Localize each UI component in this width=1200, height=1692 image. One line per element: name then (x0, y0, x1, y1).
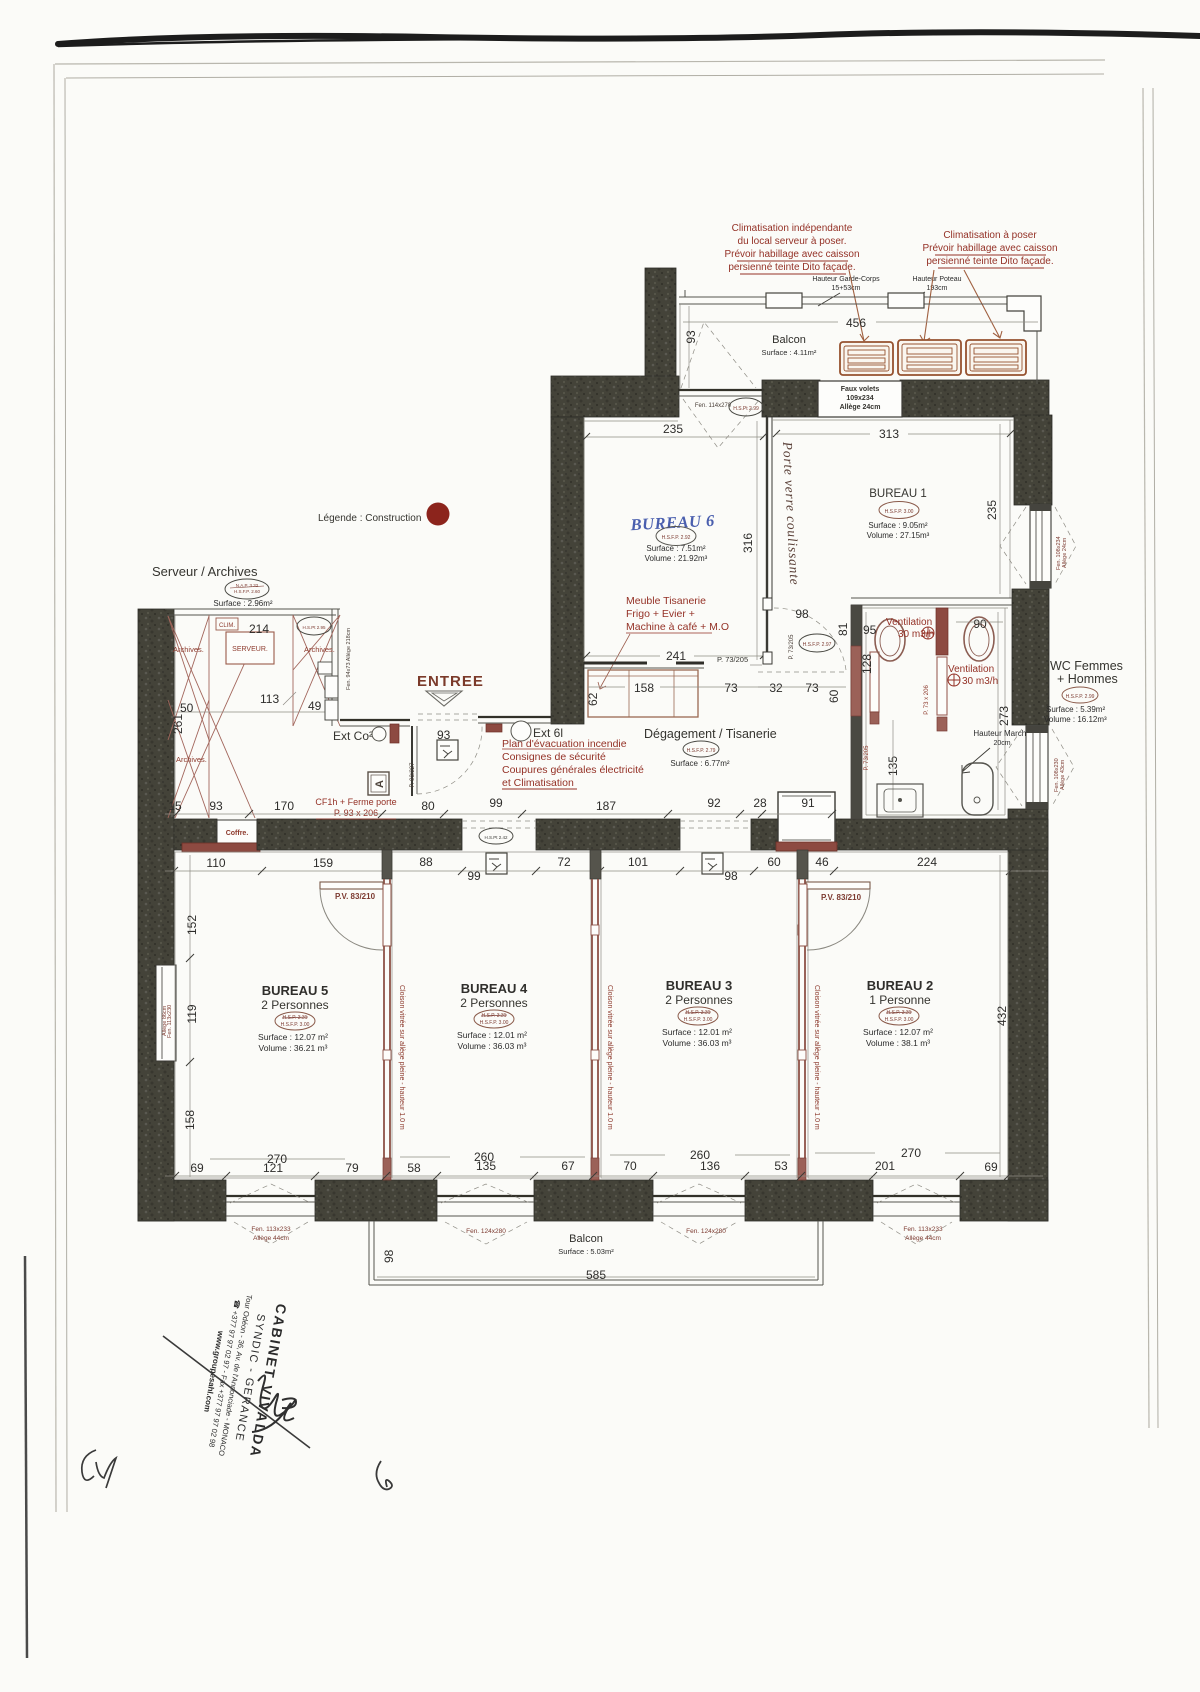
svg-text:H.S.F.P. 3.00: H.S.F.P. 3.00 (281, 1022, 310, 1028)
svg-text:88: 88 (419, 855, 433, 869)
svg-text:136: 136 (700, 1159, 720, 1173)
svg-text:Allège 24cm: Allège 24cm (1062, 537, 1068, 568)
svg-text:P. 93/227: P. 93/227 (410, 762, 416, 788)
svg-text:Volume : 38.1 m³: Volume : 38.1 m³ (866, 1038, 930, 1048)
svg-text:69: 69 (984, 1160, 998, 1174)
svg-text:H.S.F.P. 2.97: H.S.F.P. 2.97 (803, 642, 832, 648)
svg-text:Fen. 124x280: Fen. 124x280 (466, 1228, 506, 1235)
svg-text:WC Femmes: WC Femmes (1050, 659, 1123, 673)
svg-text:Fen. 113x233: Fen. 113x233 (251, 1226, 291, 1233)
svg-text:Cloison vitrée sur allège plei: Cloison vitrée sur allège pleine - haute… (813, 985, 820, 1130)
svg-text:Allège 86cm: Allège 86cm (162, 1005, 168, 1036)
svg-text:CF1h + Ferme porte: CF1h + Ferme porte (315, 797, 396, 807)
svg-text:Cloison vitrée sur allège plei: Cloison vitrée sur allège pleine - haute… (606, 985, 613, 1130)
svg-text:Fen. 114x270: Fen. 114x270 (695, 403, 732, 409)
svg-text:Fen. 94x73 Allège 218cm: Fen. 94x73 Allège 218cm (346, 628, 352, 690)
svg-text:H.S.F.P. 2.79: H.S.F.P. 2.79 (687, 748, 716, 754)
svg-text:H.S.F.P. 2.92: H.S.F.P. 2.92 (662, 535, 691, 541)
svg-text:80: 80 (421, 799, 435, 813)
svg-text:98: 98 (795, 607, 809, 621)
svg-text:79: 79 (345, 1161, 359, 1175)
svg-text:Volume : 27.15m³: Volume : 27.15m³ (867, 531, 930, 540)
svg-text:P. 93 x 206: P. 93 x 206 (334, 808, 378, 818)
svg-text:109x234: 109x234 (846, 395, 873, 402)
svg-text:Climatisation à poser: Climatisation à poser (943, 230, 1037, 241)
svg-text:95: 95 (863, 623, 877, 637)
svg-text:67: 67 (561, 1159, 575, 1173)
svg-text:30 m3/h: 30 m3/h (898, 629, 934, 640)
svg-text:Hauteur Marche: Hauteur Marche (973, 729, 1031, 738)
svg-text:119: 119 (185, 1004, 199, 1023)
svg-text:60: 60 (827, 689, 841, 703)
svg-text:persienné teinte Dito façade.: persienné teinte Dito façade. (926, 256, 1053, 267)
svg-text:Prévoir habillage avec caisson: Prévoir habillage avec caisson (922, 243, 1057, 254)
svg-text:261: 261 (171, 714, 185, 734)
svg-text:Serveur / Archives: Serveur / Archives (152, 564, 258, 579)
svg-text:159: 159 (313, 856, 333, 870)
svg-text:Volume : 36.03 m³: Volume : 36.03 m³ (458, 1041, 527, 1051)
svg-text:2 Personnes: 2 Personnes (460, 996, 527, 1010)
svg-text:Cloison vitrée sur allège plei: Cloison vitrée sur allège pleine - haute… (398, 985, 405, 1130)
svg-text:et Climatisation: et Climatisation (502, 777, 574, 789)
svg-text:98: 98 (724, 869, 738, 883)
svg-text:H.S.Pt 2.99: H.S.Pt 2.99 (733, 406, 759, 412)
svg-text:93: 93 (684, 330, 698, 344)
svg-text:H.S.P. 3.31: H.S.P. 3.31 (283, 1015, 308, 1021)
svg-text:32: 32 (769, 681, 783, 695)
svg-text:113: 113 (260, 692, 279, 706)
svg-text:Allège 44cm: Allège 44cm (905, 1235, 941, 1242)
svg-text:P.V. 83/210: P.V. 83/210 (821, 893, 862, 902)
svg-text:158: 158 (634, 681, 654, 695)
svg-text:H.S.F.P. 3.00: H.S.F.P. 3.00 (480, 1020, 509, 1026)
svg-text:Surface : 12.01 m²: Surface : 12.01 m² (457, 1030, 527, 1040)
svg-text:Surface : 4.11m²: Surface : 4.11m² (762, 348, 817, 357)
svg-text:H.S.F.P. 3.00: H.S.F.P. 3.00 (885, 1017, 914, 1023)
svg-text:99: 99 (489, 796, 503, 810)
svg-text:456: 456 (846, 316, 866, 330)
svg-text:28: 28 (753, 796, 767, 810)
svg-text:101: 101 (628, 855, 648, 869)
svg-text:187: 187 (596, 799, 616, 813)
svg-text:135: 135 (476, 1159, 496, 1173)
svg-text:20cm: 20cm (993, 740, 1010, 747)
svg-text:110: 110 (206, 856, 225, 870)
svg-text:235: 235 (663, 422, 683, 436)
svg-text:99: 99 (467, 869, 481, 883)
svg-text:P.V. 83/210: P.V. 83/210 (335, 892, 376, 901)
svg-text:Surface : 6.77m²: Surface : 6.77m² (670, 759, 729, 768)
svg-text:73: 73 (805, 681, 819, 695)
svg-text:BUREAU 1: BUREAU 1 (869, 488, 927, 500)
svg-text:Surface : 7.51m²: Surface : 7.51m² (646, 544, 705, 553)
svg-text:91: 91 (801, 796, 815, 810)
svg-text:H.S.P. 3.31: H.S.P. 3.31 (482, 1013, 507, 1019)
svg-text:60: 60 (767, 855, 781, 869)
svg-text:Balcon: Balcon (772, 334, 806, 346)
svg-text:224: 224 (917, 855, 937, 869)
svg-text:BUREAU 3: BUREAU 3 (666, 978, 732, 993)
svg-text:70: 70 (623, 1159, 637, 1173)
svg-text:201: 201 (875, 1159, 895, 1173)
svg-text:Surface : 12.07 m²: Surface : 12.07 m² (863, 1027, 933, 1037)
svg-text:Surface : 12.07 m²: Surface : 12.07 m² (258, 1032, 328, 1042)
svg-text:Allège 44cm: Allège 44cm (253, 1235, 289, 1242)
svg-text:SERVEUR.: SERVEUR. (232, 646, 268, 653)
svg-text:128: 128 (860, 654, 874, 674)
svg-text:Coupures générales électricité: Coupures générales électricité (502, 764, 644, 776)
svg-text:Légende : Construction: Légende : Construction (318, 513, 421, 524)
svg-text:BUREAU 4: BUREAU 4 (461, 981, 528, 996)
svg-text:121: 121 (263, 1161, 283, 1175)
svg-text:H.S.F.P. 3.00: H.S.F.P. 3.00 (885, 509, 914, 515)
svg-text:CLIM.: CLIM. (219, 623, 235, 629)
svg-text:Archives.: Archives. (304, 645, 335, 654)
svg-text:235: 235 (985, 500, 999, 520)
svg-text:58: 58 (407, 1161, 421, 1175)
svg-text:30 m3/h: 30 m3/h (962, 676, 998, 687)
svg-text:Surface : 5.03m²: Surface : 5.03m² (558, 1247, 614, 1256)
svg-text:Meuble Tisanerie: Meuble Tisanerie (626, 595, 706, 607)
svg-text:H.S.F.P. 3.00: H.S.F.P. 3.00 (684, 1017, 713, 1023)
svg-text:Machine à café + M.O: Machine à café + M.O (626, 621, 729, 633)
svg-text:93: 93 (209, 799, 223, 813)
svg-text:270: 270 (901, 1146, 921, 1160)
svg-text:du local serveur à poser.: du local serveur à poser. (738, 236, 847, 247)
svg-text:Plan d'évacuation incendie: Plan d'évacuation incendie (502, 738, 627, 750)
svg-text:49: 49 (308, 699, 322, 713)
svg-text:241: 241 (666, 649, 686, 663)
svg-text:+ Hommes: + Hommes (1057, 672, 1118, 686)
svg-text:persienné teinte Dito façade.: persienné teinte Dito façade. (728, 262, 855, 273)
svg-text:P. 73 x 206: P. 73 x 206 (924, 685, 930, 715)
svg-text:Coffre.: Coffre. (226, 830, 249, 837)
svg-text:432: 432 (995, 1006, 1009, 1026)
svg-text:H.S.P. 3.31: H.S.P. 3.31 (887, 1010, 912, 1016)
svg-text:46: 46 (815, 855, 829, 869)
svg-text:313: 313 (879, 427, 899, 441)
svg-text:69: 69 (190, 1161, 204, 1175)
svg-text:Consignes de sécurité: Consignes de sécurité (502, 751, 606, 763)
svg-text:Surface : 12.01 m²: Surface : 12.01 m² (662, 1027, 732, 1037)
svg-text:Climatisation indépendante: Climatisation indépendante (732, 223, 853, 234)
svg-text:Volume : 36.21 m³: Volume : 36.21 m³ (259, 1043, 328, 1053)
svg-text:H.S.F.P. 2.60: H.S.F.P. 2.60 (234, 589, 260, 594)
svg-text:72: 72 (557, 855, 571, 869)
svg-text:273: 273 (997, 706, 1011, 726)
svg-text:Prévoir habillage avec caisson: Prévoir habillage avec caisson (724, 249, 859, 260)
svg-text:H.S.Pt 2.95: H.S.Pt 2.95 (302, 625, 326, 630)
svg-text:158: 158 (183, 1110, 197, 1130)
svg-text:Ventilation: Ventilation (886, 617, 932, 628)
svg-text:Ventilation: Ventilation (948, 664, 994, 675)
svg-text:50: 50 (180, 701, 194, 715)
svg-text:Volume : 16.12m³: Volume : 16.12m³ (1044, 715, 1107, 724)
svg-text:Surface : 2.96m²: Surface : 2.96m² (213, 599, 272, 608)
svg-text:H.S.F.P. 2.99: H.S.F.P. 2.99 (1066, 694, 1095, 700)
svg-text:Archives.: Archives. (176, 755, 207, 764)
svg-text:Fen. 113x233: Fen. 113x233 (903, 1226, 943, 1233)
svg-text:81: 81 (836, 622, 850, 636)
svg-text:73: 73 (724, 681, 738, 695)
svg-text:2 Personnes: 2 Personnes (665, 993, 732, 1007)
svg-text:92: 92 (707, 796, 721, 810)
svg-text:Hauteur Garde-Corps: Hauteur Garde-Corps (812, 276, 880, 283)
svg-text:Allège 43cm: Allège 43cm (1060, 759, 1066, 790)
svg-text:15+53cm: 15+53cm (832, 285, 861, 292)
svg-text:P. 73/205: P. 73/205 (717, 655, 748, 664)
svg-text:A: A (374, 780, 386, 788)
svg-text:Allège 24cm: Allège 24cm (840, 404, 881, 411)
svg-text:Balcon: Balcon (569, 1233, 603, 1245)
svg-text:P. 73/205: P. 73/205 (789, 634, 795, 660)
svg-text:316: 316 (741, 533, 755, 553)
svg-text:Hauteur Poteau: Hauteur Poteau (912, 276, 961, 283)
svg-text:Ext Co²: Ext Co² (333, 729, 373, 743)
svg-text:98: 98 (382, 1249, 396, 1263)
svg-text:ENTREE: ENTREE (417, 673, 484, 690)
svg-text:H.S.Pt 2.42: H.S.Pt 2.42 (484, 835, 508, 840)
svg-text:Fen. 124x280: Fen. 124x280 (686, 1228, 726, 1235)
svg-text:53: 53 (774, 1159, 788, 1173)
svg-text:90: 90 (973, 617, 987, 631)
svg-text:Volume : 36.03 m³: Volume : 36.03 m³ (663, 1038, 732, 1048)
svg-text:Faux volets: Faux volets (841, 386, 880, 393)
svg-text:585: 585 (586, 1268, 606, 1282)
svg-text:Archives.: Archives. (173, 645, 204, 654)
svg-text:H.S.P. 3.31: H.S.P. 3.31 (686, 1010, 711, 1016)
svg-text:Surface : 5.39m²: Surface : 5.39m² (1046, 705, 1105, 714)
svg-text:Dégagement / Tisanerie: Dégagement / Tisanerie (644, 727, 777, 741)
svg-text:BUREAU 5: BUREAU 5 (262, 983, 328, 998)
svg-text:Surface : 9.05m²: Surface : 9.05m² (868, 521, 927, 530)
svg-text:193cm: 193cm (926, 285, 947, 292)
svg-text:P. 73/205: P. 73/205 (864, 745, 870, 771)
svg-text:2 Personnes: 2 Personnes (261, 998, 328, 1012)
svg-text:62: 62 (586, 692, 600, 706)
svg-text:15: 15 (168, 799, 182, 813)
svg-text:BUREAU 2: BUREAU 2 (867, 978, 933, 993)
svg-text:214: 214 (249, 622, 269, 636)
svg-text:Volume : 21.92m³: Volume : 21.92m³ (645, 554, 708, 563)
svg-text:Frigo + Evier +: Frigo + Evier + (626, 608, 695, 620)
svg-text:152: 152 (185, 915, 199, 935)
svg-text:1 Personne: 1 Personne (869, 993, 931, 1007)
svg-text:170: 170 (274, 799, 294, 813)
